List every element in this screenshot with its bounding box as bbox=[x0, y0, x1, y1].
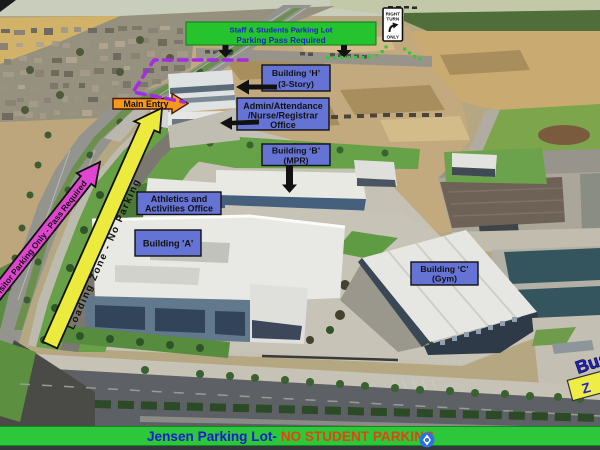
svg-text:Building ‘B’: Building ‘B’ bbox=[272, 146, 320, 156]
svg-text:Parking Pass Required: Parking Pass Required bbox=[236, 36, 325, 45]
svg-text:(Gym): (Gym) bbox=[432, 274, 457, 284]
svg-text:Staff & Students Parking Lot: Staff & Students Parking Lot bbox=[230, 26, 333, 35]
svg-text:Building ‘H’: Building ‘H’ bbox=[272, 68, 320, 78]
svg-text:Jensen Parking Lot- NO STUDENT: Jensen Parking Lot- NO STUDENT PARKING bbox=[147, 429, 435, 444]
svg-text:Activities Office: Activities Office bbox=[145, 204, 213, 214]
svg-text:Office: Office bbox=[270, 120, 296, 130]
svg-text:Building 'A': Building 'A' bbox=[143, 238, 193, 248]
svg-text:(3-Story): (3-Story) bbox=[278, 79, 314, 89]
svg-text:Building ‘C’: Building ‘C’ bbox=[420, 264, 468, 274]
svg-text:Athletics and: Athletics and bbox=[151, 194, 208, 204]
svg-text:ONLY: ONLY bbox=[387, 35, 399, 40]
svg-text:/Nurse/Registrar: /Nurse/Registrar bbox=[248, 110, 319, 120]
svg-text:TURN: TURN bbox=[386, 17, 399, 22]
svg-text:Admin/Attendance: Admin/Attendance bbox=[243, 101, 323, 111]
svg-text:(MPR): (MPR) bbox=[283, 155, 308, 165]
